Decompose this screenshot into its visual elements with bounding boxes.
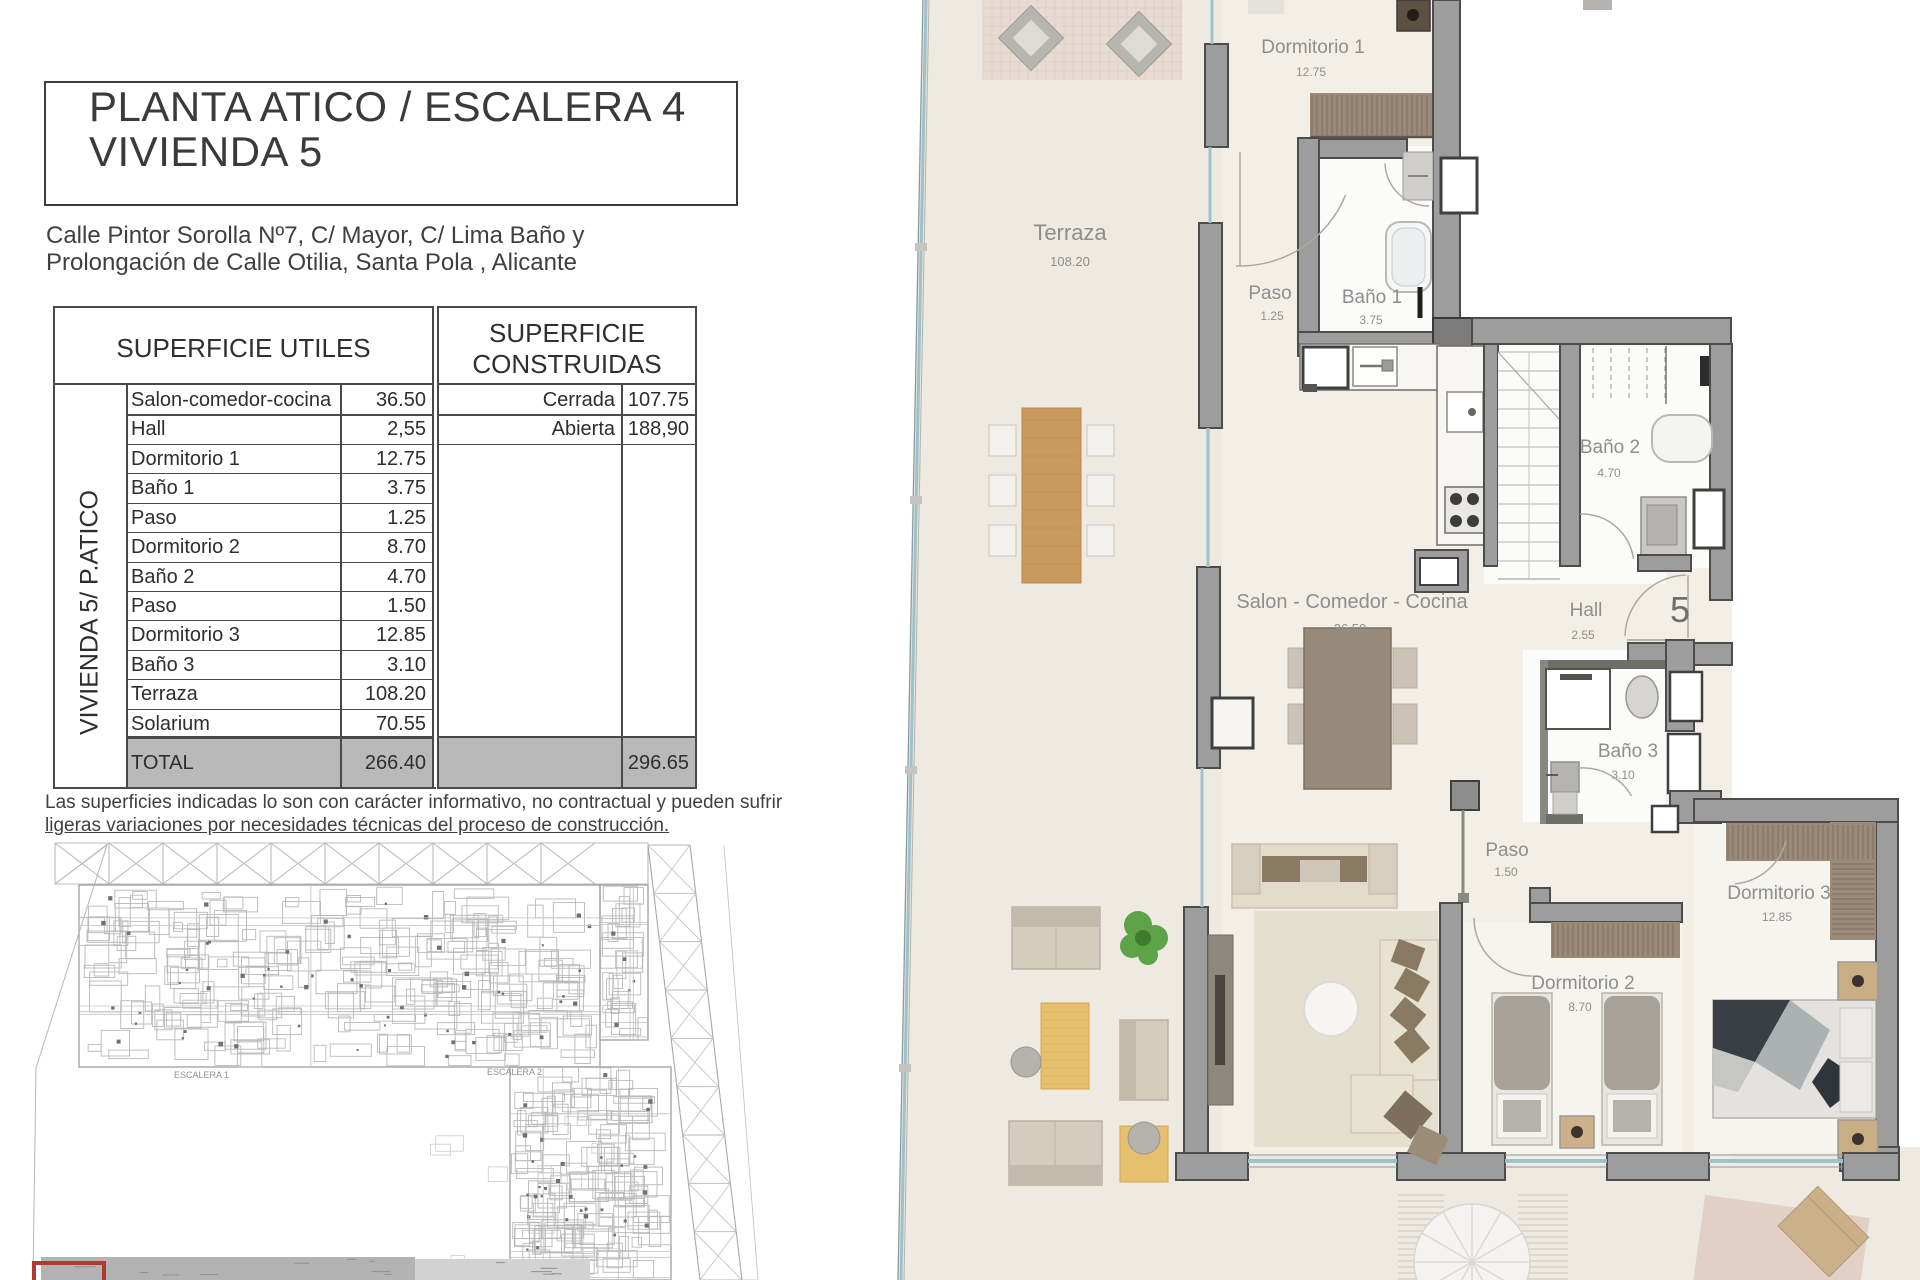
svg-text:36.50: 36.50	[1334, 621, 1367, 636]
svg-text:12.75: 12.75	[1296, 65, 1326, 79]
svg-text:2.55: 2.55	[1571, 628, 1595, 642]
svg-text:Dormitorio 2: Dormitorio 2	[1531, 973, 1634, 994]
svg-text:ESCALERA 2: ESCALERA 2	[487, 1067, 542, 1077]
svg-text:5: 5	[1670, 589, 1690, 630]
svg-text:3.10: 3.10	[1611, 768, 1635, 782]
svg-text:Dormitorio 1: Dormitorio 1	[1261, 37, 1364, 58]
svg-text:8.70: 8.70	[1568, 1000, 1592, 1014]
svg-text:Paso: Paso	[1485, 840, 1528, 861]
svg-text:Terraza: Terraza	[1033, 220, 1107, 245]
svg-text:1.25: 1.25	[1260, 309, 1284, 323]
svg-text:Baño 2: Baño 2	[1580, 437, 1640, 458]
svg-text:Hall: Hall	[1570, 600, 1603, 621]
svg-text:12.85: 12.85	[1762, 910, 1792, 924]
svg-text:Paso: Paso	[1248, 283, 1291, 304]
svg-text:Dormitorio 3: Dormitorio 3	[1727, 883, 1830, 904]
svg-text:3.75: 3.75	[1359, 313, 1383, 327]
svg-text:Salon - Comedor - Cocina: Salon - Comedor - Cocina	[1236, 591, 1468, 613]
svg-text:1.50: 1.50	[1494, 865, 1518, 879]
svg-text:Baño 3: Baño 3	[1598, 741, 1658, 762]
svg-text:ESCALERA 1: ESCALERA 1	[174, 1070, 229, 1080]
svg-text:4.70: 4.70	[1597, 466, 1621, 480]
svg-text:108.20: 108.20	[1050, 254, 1090, 269]
svg-text:Baño 1: Baño 1	[1342, 287, 1402, 308]
